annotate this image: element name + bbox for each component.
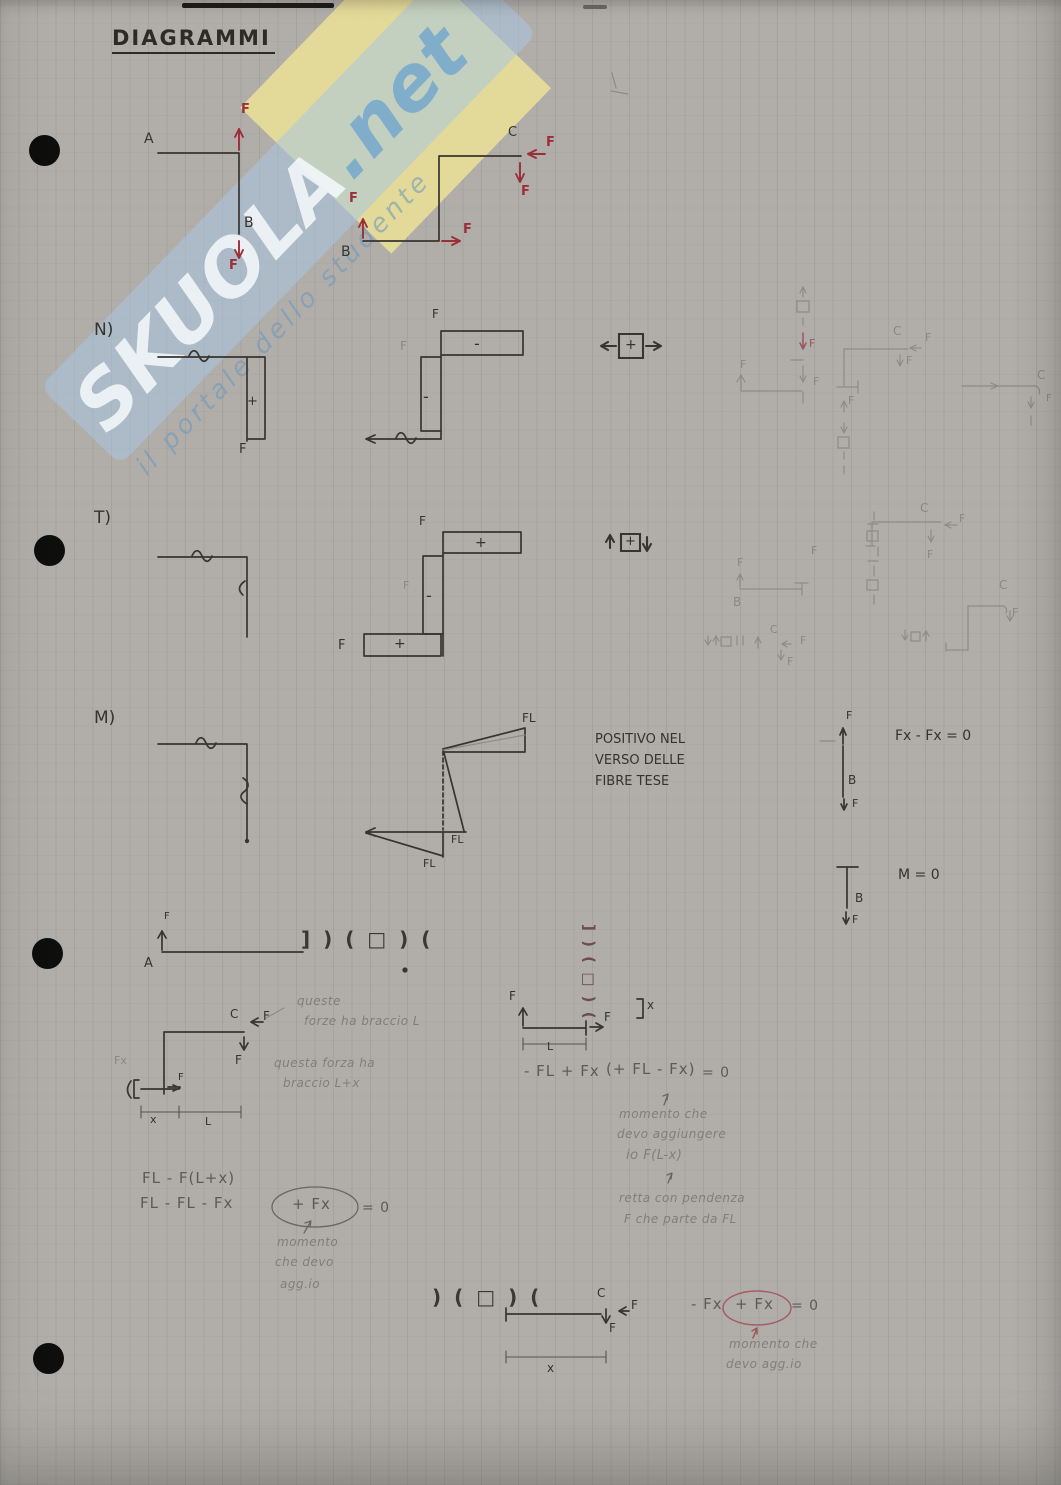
handwritten-label: FL - FL - Fx [140, 1196, 233, 1211]
handwritten-label: F [848, 395, 854, 406]
handwritten-label: FL [522, 712, 536, 724]
handwritten-label: B [244, 216, 254, 230]
handwritten-label: F [229, 259, 238, 272]
handwritten-label: C [230, 1008, 238, 1020]
handwritten-label: F [521, 185, 530, 198]
handwritten-label: x [647, 999, 654, 1011]
handwritten-label: momento che [619, 1108, 708, 1120]
handwritten-label: x [150, 1114, 157, 1125]
handwritten-label: - Fx [691, 1297, 723, 1312]
scanned-notebook-page: { "page": { "title": "DIAGRAMMI" }, "wat… [0, 0, 1061, 1485]
handwritten-label: F [432, 308, 439, 320]
label-layer: AFBFBFFCFFN)+FF--F+FFFCFFFCFT)F+-F+F+CFF… [0, 0, 1061, 1485]
handwritten-label: A [144, 957, 153, 970]
handwritten-label: F [925, 332, 931, 343]
handwritten-label: F [846, 710, 852, 721]
handwritten-label: M = 0 [898, 868, 940, 882]
handwritten-label: C [999, 579, 1007, 591]
handwritten-label: + [625, 338, 637, 352]
handwritten-label: C [920, 502, 928, 514]
handwritten-label: momento che [729, 1338, 818, 1350]
handwritten-label: F [178, 1073, 184, 1083]
handwritten-label: (+ FL - Fx) [606, 1062, 695, 1077]
handwritten-label: C [597, 1287, 605, 1299]
handwritten-label: F [403, 580, 409, 591]
handwritten-label: F [338, 639, 345, 652]
scan-artifact [182, 3, 334, 8]
handwritten-label: B [848, 774, 856, 786]
handwritten-label: retta con pendenza [619, 1192, 745, 1204]
handwritten-label: F [1046, 394, 1052, 404]
handwritten-label: F [235, 1054, 242, 1066]
handwritten-label: queste [297, 995, 341, 1007]
handwritten-label: F [463, 223, 472, 236]
handwritten-label: - [423, 389, 429, 405]
handwritten-label: forze ha braccio L [304, 1015, 420, 1027]
handwritten-label: F [263, 1010, 270, 1022]
handwritten-label: F [164, 912, 170, 922]
handwritten-label: agg.io [280, 1278, 320, 1290]
handwritten-label: - [426, 588, 432, 604]
handwritten-label: io F(L-x) [626, 1149, 682, 1162]
handwritten-label: F [737, 557, 743, 568]
handwritten-label: F [1012, 607, 1018, 618]
hole-punch [32, 938, 63, 969]
handwritten-label: Fx [114, 1055, 127, 1066]
handwritten-label: F [241, 103, 250, 116]
handwritten-label: - [474, 336, 480, 352]
handwritten-label: + [475, 536, 487, 550]
handwritten-label: A [144, 132, 154, 146]
handwritten-label: + [394, 637, 406, 651]
handwritten-label: B [733, 596, 741, 608]
handwritten-label: F [852, 914, 858, 925]
handwritten-label: F [546, 136, 555, 149]
handwritten-label: C [893, 325, 901, 337]
hole-punch [29, 135, 60, 166]
handwritten-label: C [1037, 369, 1045, 381]
handwritten-label: C [508, 126, 517, 139]
hole-punch [34, 535, 65, 566]
handwritten-label: ] ) ( □ ) ( [301, 929, 433, 949]
handwritten-label: FL - F(L+x) [142, 1171, 235, 1186]
handwritten-label: B [855, 892, 863, 904]
handwritten-label: = 0 [362, 1201, 390, 1215]
hole-punch [33, 1343, 64, 1374]
handwritten-label: L [205, 1116, 211, 1127]
handwritten-label: + [247, 395, 258, 408]
handwritten-label: N) [94, 322, 113, 339]
handwritten-label: F [959, 513, 965, 524]
scan-artifact [583, 5, 607, 9]
handwritten-label: FIBRE TESE [595, 775, 669, 788]
handwritten-label: + Fx [735, 1297, 774, 1312]
handwritten-label: F [239, 443, 246, 456]
handwritten-label: FL [451, 834, 463, 845]
handwritten-label: devo agg.io [726, 1358, 802, 1370]
handwritten-label: POSITIVO NEL [595, 733, 685, 746]
handwritten-label: F [509, 990, 516, 1002]
handwritten-label: + Fx [292, 1197, 331, 1212]
handwritten-label: VERSO DELLE [595, 754, 685, 767]
handwritten-label: C [770, 624, 778, 635]
handwritten-label: questa forza ha [274, 1057, 375, 1069]
handwritten-label: F [927, 549, 933, 560]
handwritten-label: F [419, 515, 426, 527]
handwritten-label: F [787, 656, 793, 667]
handwritten-label: M) [94, 710, 115, 727]
handwritten-label: ) ( □ ) ( [432, 1287, 542, 1307]
handwritten-label: F [852, 798, 858, 809]
handwritten-label: F [809, 338, 815, 349]
handwritten-label: ] ) ( □ ) ( [581, 924, 596, 1021]
page-title: DIAGRAMMI [112, 26, 275, 54]
handwritten-label: F [604, 1011, 611, 1023]
handwritten-label: che devo [275, 1256, 334, 1268]
handwritten-label: Fx - Fx = 0 [895, 729, 971, 743]
handwritten-label: + [625, 535, 636, 548]
handwritten-label: F [631, 1299, 638, 1311]
handwritten-label: FL [423, 858, 435, 869]
handwritten-label: x [547, 1362, 554, 1374]
handwritten-label: F che parte da FL [624, 1213, 737, 1225]
handwritten-label: F [400, 340, 407, 352]
handwritten-label: F [906, 355, 912, 366]
handwritten-label: = 0 [702, 1066, 730, 1080]
handwritten-label: momento [277, 1236, 338, 1248]
handwritten-label: = 0 [791, 1299, 819, 1313]
handwritten-label: F [813, 376, 819, 387]
handwritten-label: F [800, 635, 806, 646]
handwritten-label: F [609, 1322, 616, 1334]
handwritten-label: F [811, 545, 817, 556]
handwritten-label: F [349, 192, 358, 205]
handwritten-label: F [740, 359, 746, 370]
handwritten-label: braccio L+x [283, 1077, 360, 1089]
handwritten-label: B [341, 245, 351, 259]
handwritten-label: L [547, 1041, 553, 1052]
handwritten-label: - FL + Fx [524, 1064, 600, 1079]
handwritten-label: T) [94, 510, 111, 527]
handwritten-label: devo aggiungere [617, 1128, 726, 1140]
